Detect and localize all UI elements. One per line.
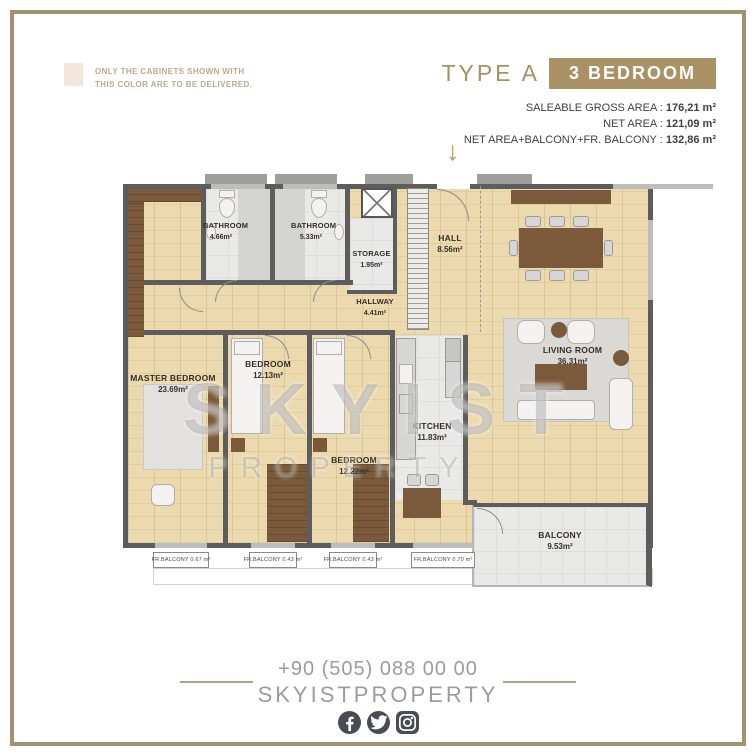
shaft-icon [361, 188, 393, 218]
room-label-bathroom1: BATHROOM 4.66m² [203, 220, 239, 244]
stat-row-net-balcony: NET AREA+BALCONY+FR. BALCONY : 132,86 m² [464, 132, 716, 148]
window [648, 220, 653, 300]
wall [123, 330, 395, 335]
watermark-property: PROPERTY [200, 454, 480, 483]
french-balcony-door [251, 543, 295, 548]
social-icons [0, 711, 756, 734]
french-balcony-door [331, 543, 375, 548]
wall [347, 290, 397, 294]
pillow [316, 341, 342, 355]
window [613, 184, 713, 189]
wall-stub [477, 174, 532, 184]
brand-name: SKYISTPROPERTY [0, 682, 756, 708]
room-label-hallway: HALLWAY 4.41m² [335, 296, 415, 320]
cabinet-color-swatch [64, 63, 83, 86]
french-balcony-door [413, 543, 473, 548]
unit-type-label: TYPE A [430, 60, 540, 87]
armchair [567, 320, 595, 344]
delivery-note: ONLY THE CABINETS SHOWN WITH THIS COLOR … [95, 65, 252, 91]
chair [573, 270, 589, 281]
facebook-icon [338, 711, 361, 734]
side-table [551, 322, 567, 338]
sideboard [511, 190, 611, 204]
watermark-brand: SKYIST [170, 374, 600, 446]
twitter-icon [367, 711, 390, 734]
kitchen-table [403, 488, 441, 518]
fr-balcony-strip: FR.BALCONY 0.43 m² [329, 552, 377, 568]
entrance-opening [437, 184, 470, 189]
bedroom-count-badge: 3 BEDROOM [549, 58, 716, 89]
french-balcony-door [155, 543, 207, 548]
chair [525, 270, 541, 281]
room-label-living-room: LIVING ROOM 36.31m² [520, 344, 625, 368]
wall-stub [275, 174, 337, 184]
wall [393, 184, 397, 294]
area-stats: SALEABLE GROSS AREA : 176,21 m² NET AREA… [464, 100, 716, 148]
room-label-bathroom2: BATHROOM 5.33m² [291, 220, 331, 244]
toilet-tank-icon [311, 190, 327, 198]
instagram-icon [396, 711, 419, 734]
fr-balcony-strip: FR.BALCONY 0.43 m² [249, 552, 297, 568]
pillow [234, 341, 260, 355]
floor-plan: BALCONY 9.53m² [115, 172, 663, 596]
room-label-hall: HALL 8.56m² [421, 232, 479, 256]
dining-table [519, 228, 603, 268]
wardrobe [128, 189, 144, 337]
wall-stub [205, 174, 267, 184]
toilet-tank-icon [219, 190, 235, 198]
window [283, 184, 337, 189]
room-balcony: BALCONY 9.53m² [472, 503, 652, 587]
ceiling-line [480, 186, 481, 332]
chair [549, 270, 565, 281]
phone-number: +90 (505) 088 00 00 [0, 658, 756, 681]
chair [549, 216, 565, 227]
wall [123, 280, 353, 285]
window [211, 184, 265, 189]
wall [270, 184, 275, 285]
entrance-arrow-icon: ↓ [446, 136, 460, 167]
wardrobe [128, 189, 202, 202]
armchair [517, 320, 545, 344]
fr-balcony-strip: FR.BALCONY 0.67 m² [153, 552, 209, 568]
stat-row-gross: SALEABLE GROSS AREA : 176,21 m² [464, 100, 716, 116]
chair [509, 240, 518, 256]
chair [525, 216, 541, 227]
shower-area [238, 189, 270, 280]
armchair [151, 484, 175, 506]
chair [604, 240, 613, 256]
fr-balcony-strip: FR.BALCONY 0.70 m² [411, 552, 475, 568]
room-label-storage: STORAGE 1.95m² [348, 248, 395, 272]
fridge-icon [445, 338, 461, 362]
delivery-note-line2: THIS COLOR ARE TO BE DELIVERED. [95, 78, 252, 91]
chaise [609, 378, 633, 430]
chair [573, 216, 589, 227]
wall [463, 500, 477, 505]
delivery-note-line1: ONLY THE CABINETS SHOWN WITH [95, 65, 252, 78]
stat-row-net: NET AREA : 121,09 m² [464, 116, 716, 132]
wall-stub [365, 174, 413, 184]
